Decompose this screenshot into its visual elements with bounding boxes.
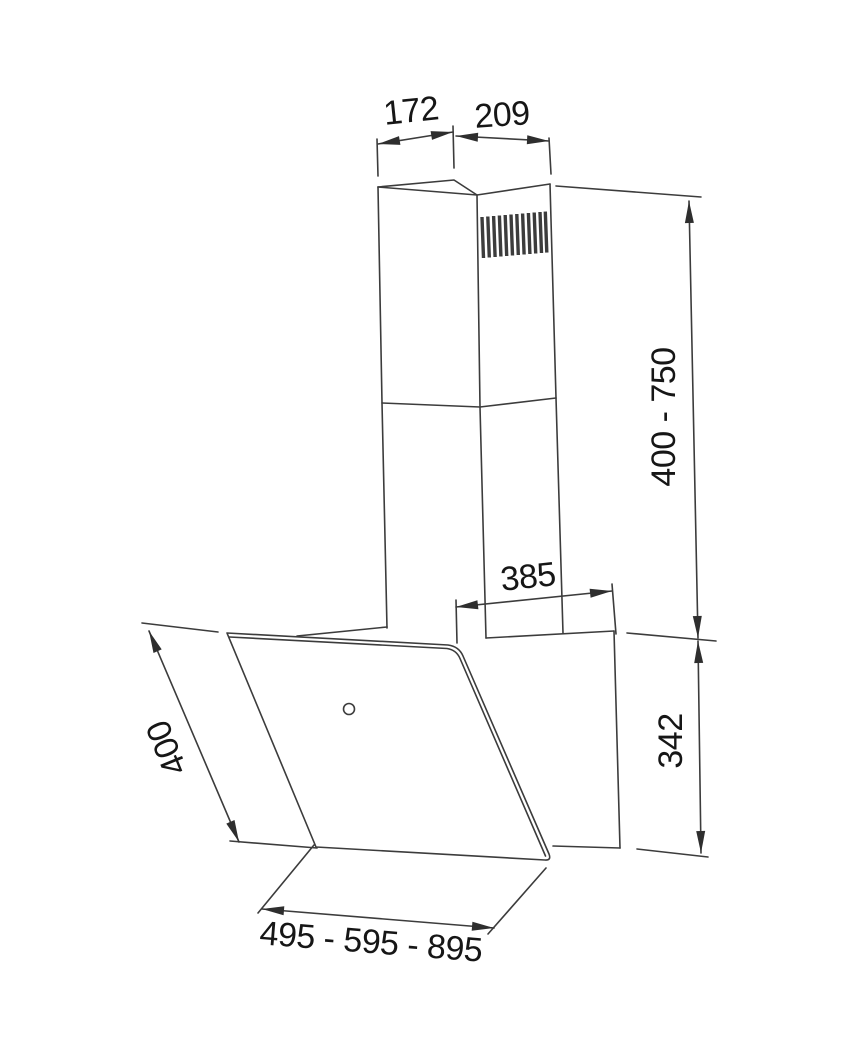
extension-line (142, 623, 218, 632)
dimension-label-hood-height: 342 (652, 713, 690, 768)
chimney-left-edge (378, 187, 387, 628)
extension-line (549, 138, 551, 174)
glass-panel-inner-edge (230, 637, 546, 856)
extension-line (258, 845, 314, 913)
dimension-label-hood-width-variants: 495 - 595 - 895 (258, 914, 483, 969)
arrowhead-right (472, 922, 494, 931)
dimension-labels: 172 209 400 - 750 385 342 400 495 - 595 … (139, 89, 690, 969)
arrowhead-bottom (226, 820, 239, 842)
arrowhead-bottom (693, 616, 702, 638)
arrowhead-left (378, 136, 400, 145)
hood-side-back-edge (614, 631, 620, 848)
extension-line (637, 849, 708, 857)
dimension-label-chimney-depth: 172 (382, 89, 441, 133)
dimension-label-chimney-height-range: 400 - 750 (645, 347, 683, 486)
dimension-line (689, 201, 698, 638)
dimension-chimney-width (456, 133, 551, 174)
dimension-line (698, 641, 701, 853)
hood-side-bottom-edge (553, 846, 620, 848)
arrowhead-bottom (696, 831, 705, 853)
arrowhead-top (694, 641, 703, 663)
extension-line (230, 841, 317, 848)
hood-body (227, 627, 620, 860)
arrowhead-top (685, 201, 694, 223)
hood-technical-drawing: 172 209 400 - 750 385 342 400 495 - 595 … (0, 0, 860, 1062)
dimension-label-glass-length: 400 (139, 715, 195, 780)
arrowhead-right (527, 135, 549, 144)
extension-line (488, 868, 546, 934)
hood-top-back-edge-left (297, 627, 387, 636)
arrowhead-top (149, 631, 162, 653)
chimney-telescopic-seam (382, 398, 556, 407)
chimney-middle-edge (477, 195, 486, 638)
glass-panel-hole (344, 704, 355, 715)
extension-line (556, 186, 701, 197)
vent-grille (482, 212, 547, 258)
installation-diagram: 172 209 400 - 750 385 342 400 495 - 595 … (0, 0, 860, 1062)
hood-top-back-edge-right (486, 631, 614, 638)
extension-line (627, 633, 716, 641)
glass-panel (227, 633, 550, 860)
dimension-chimney-depth (377, 126, 454, 176)
dimension-label-hood-depth: 385 (499, 555, 558, 599)
arrowhead-right (431, 131, 453, 140)
dimension-label-chimney-width: 209 (473, 94, 531, 136)
arrowhead-right (590, 589, 612, 598)
arrowhead-left (456, 600, 478, 609)
